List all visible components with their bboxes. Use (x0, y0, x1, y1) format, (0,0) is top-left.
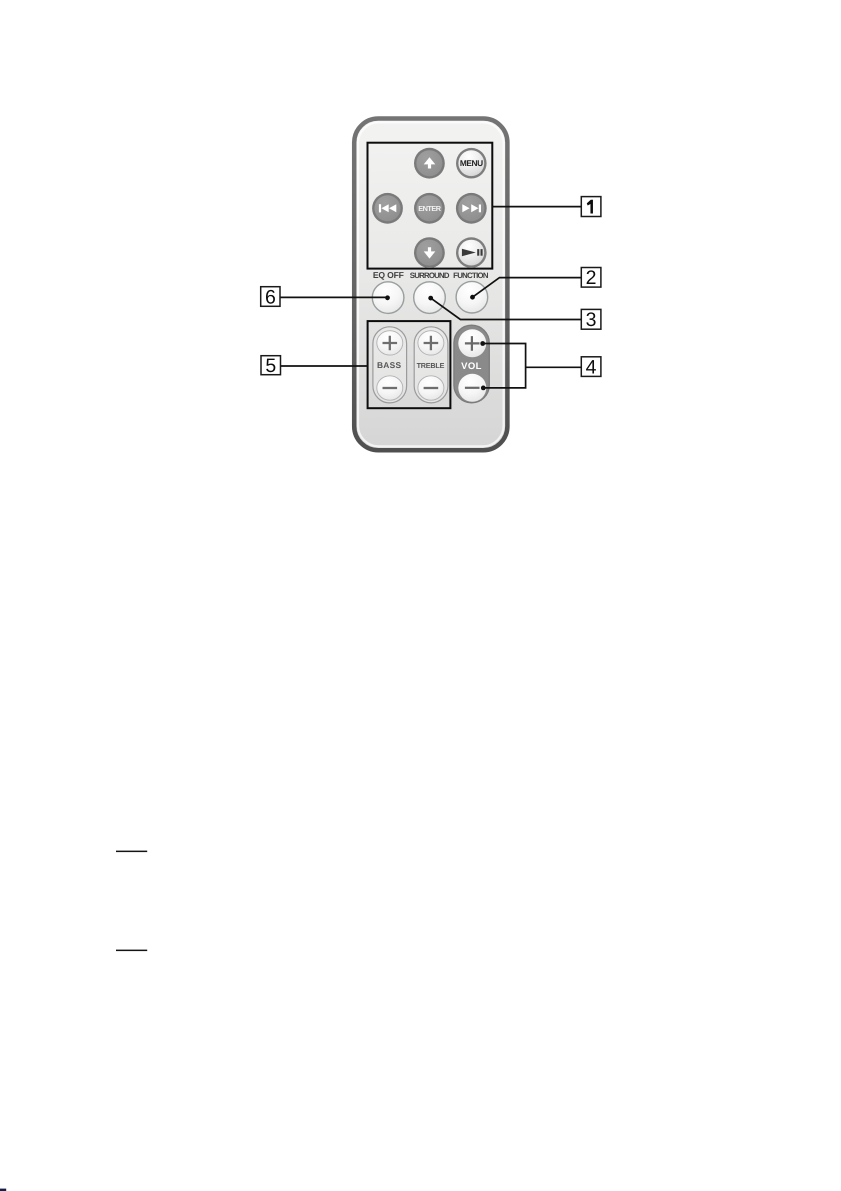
svg-text:FUNCTION: FUNCTION (453, 271, 489, 280)
svg-text:5: 5 (265, 355, 276, 377)
svg-text:ENTER: ENTER (418, 204, 441, 213)
svg-text:SURROUND: SURROUND (410, 271, 450, 280)
svg-text:MENU: MENU (460, 158, 483, 168)
svg-text:TREBLE: TREBLE (417, 361, 445, 370)
svg-text:BASS: BASS (377, 360, 402, 370)
svg-text:3: 3 (586, 309, 597, 331)
svg-text:2: 2 (586, 267, 597, 289)
svg-text:6: 6 (265, 286, 276, 308)
svg-text:4: 4 (586, 357, 597, 379)
svg-text:EQ OFF: EQ OFF (373, 270, 404, 280)
svg-text:VOL: VOL (461, 361, 482, 372)
